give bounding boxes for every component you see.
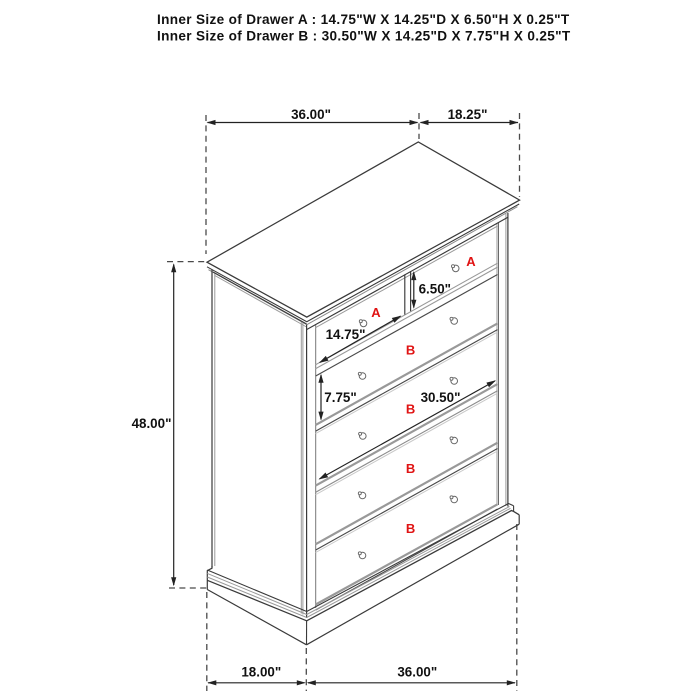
svg-text:Inner Size of Drawer B : 30.50: Inner Size of Drawer B : 30.50"W X 14.25… xyxy=(157,28,571,43)
svg-text:B: B xyxy=(406,402,415,417)
svg-text:18.25": 18.25" xyxy=(448,107,488,122)
svg-text:6.50": 6.50" xyxy=(419,281,451,296)
svg-text:B: B xyxy=(406,521,415,536)
svg-text:7.75": 7.75" xyxy=(324,390,356,405)
svg-text:36.00": 36.00" xyxy=(397,664,437,679)
svg-text:A: A xyxy=(466,254,476,269)
svg-text:36.00": 36.00" xyxy=(291,107,331,122)
svg-text:A: A xyxy=(371,305,381,320)
svg-text:B: B xyxy=(406,461,415,476)
svg-text:Inner Size of Drawer A : 14.75: Inner Size of Drawer A : 14.75"W X 14.25… xyxy=(157,12,570,27)
svg-text:48.00": 48.00" xyxy=(132,416,172,431)
svg-text:18.00": 18.00" xyxy=(241,664,281,679)
svg-text:B: B xyxy=(406,342,415,357)
svg-text:30.50": 30.50" xyxy=(421,390,461,405)
svg-text:14.75": 14.75" xyxy=(326,327,366,342)
